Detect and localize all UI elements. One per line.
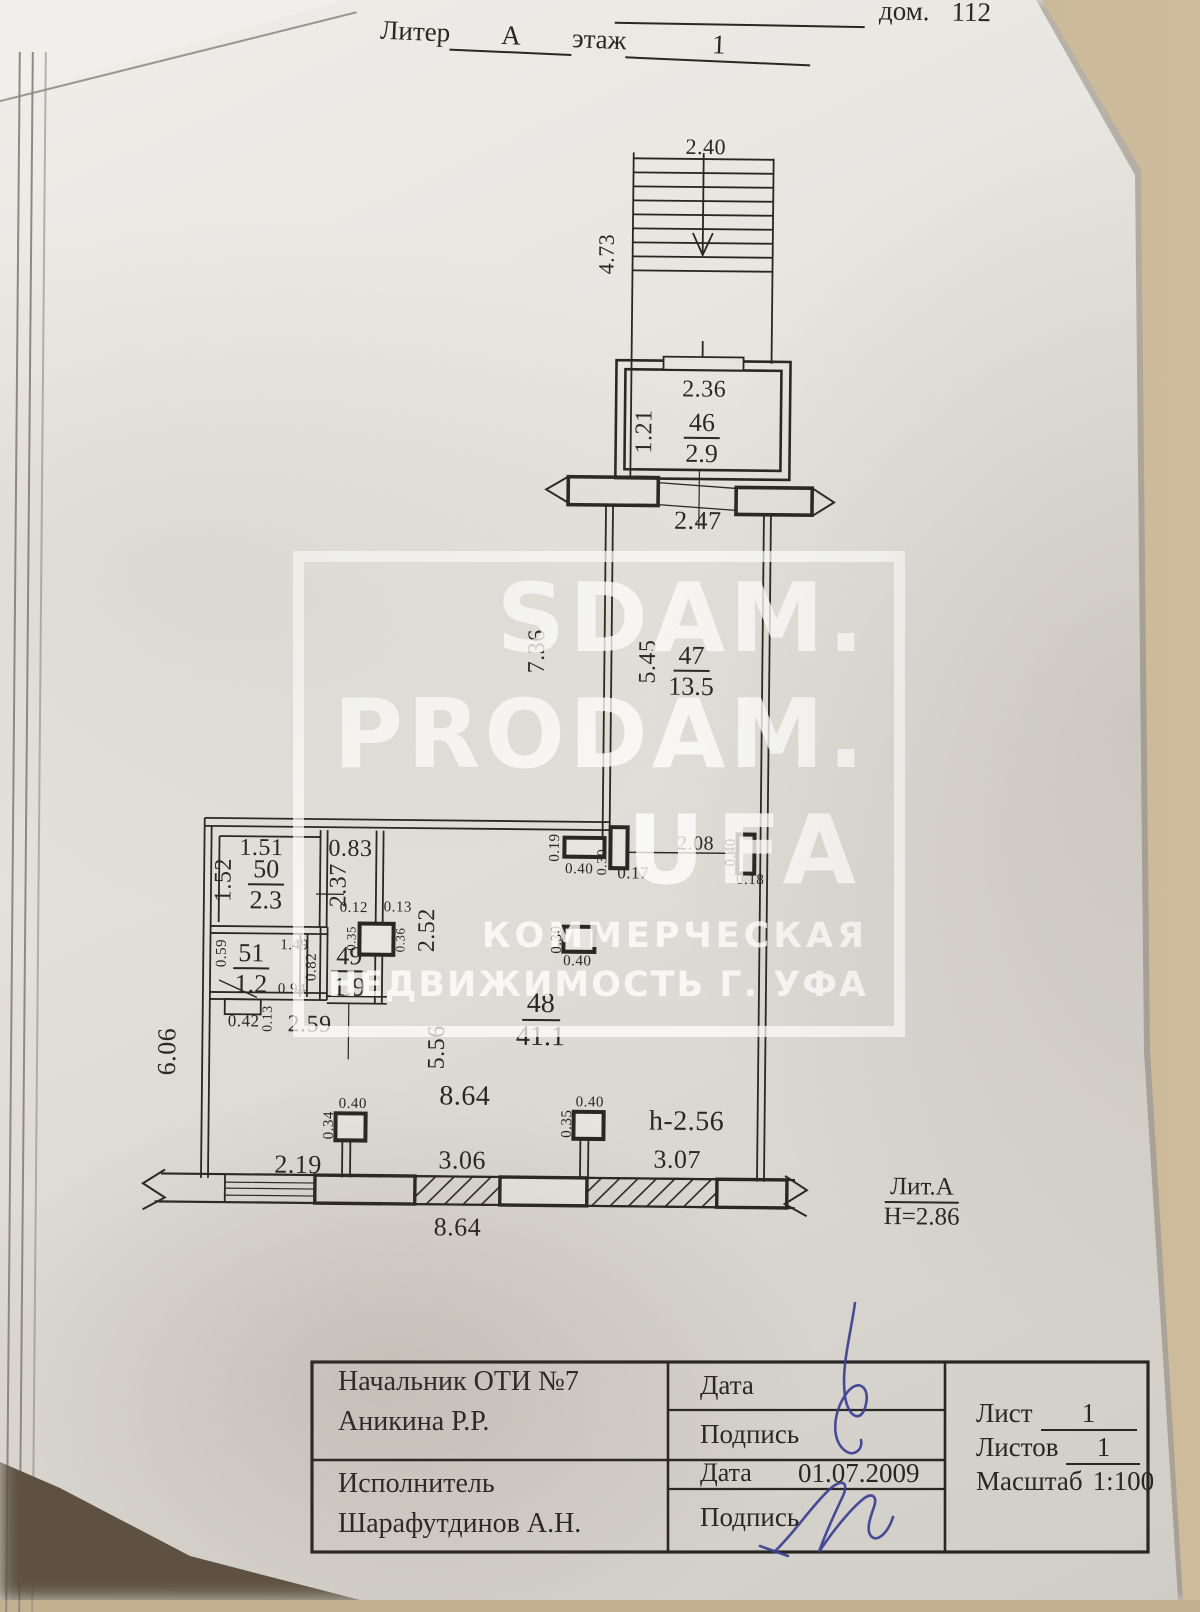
room-label-51: 51 1.2 bbox=[233, 938, 270, 999]
executor-role: Исполнитель bbox=[338, 1468, 495, 1500]
watermark-frame: SDAM. PRODAM. UFA КОММЕРЧЕСКАЯ НЕДВИЖИМО… bbox=[293, 551, 905, 1037]
watermark-sub-2: НЕДВИЖИМОСТЬ Г. УФА bbox=[304, 963, 868, 1009]
dim-hall-width: 8.64 bbox=[439, 1080, 490, 1113]
sheets-value: 1 bbox=[1066, 1432, 1140, 1465]
date-label-1: Дата bbox=[700, 1370, 754, 1401]
dim-r51-side: 0.59 bbox=[214, 939, 231, 967]
dim-bottom-seg1: 2.19 bbox=[274, 1150, 322, 1180]
dim-r50-depth: 1.52 bbox=[210, 858, 237, 902]
watermark-line-3: UFA bbox=[304, 794, 868, 910]
legend-liter-value: Лит.А bbox=[885, 1173, 959, 1204]
dim-colB-width: 0.40 bbox=[576, 1094, 604, 1111]
scale-value: 1:100 bbox=[1093, 1466, 1155, 1497]
scale-row: Масштаб 1:100 bbox=[976, 1466, 1154, 1497]
room-label-50: 50 2.3 bbox=[248, 854, 285, 915]
dim-bottom-seg3: 3.07 bbox=[653, 1145, 701, 1175]
dim-ceiling-height: h-2.56 bbox=[649, 1106, 725, 1139]
date-label-2: Дата bbox=[700, 1458, 752, 1488]
dim-colB-depth: 0.35 bbox=[559, 1109, 576, 1137]
scale-label: Масштаб bbox=[976, 1466, 1083, 1497]
chief-name: Аникина Р.Р. bbox=[338, 1406, 489, 1438]
dim-stair-width: 2.40 bbox=[685, 134, 726, 160]
watermark-line-2: PRODAM. bbox=[304, 678, 868, 794]
dim-stair-length: 4.73 bbox=[593, 234, 619, 275]
sheet-value: 1 bbox=[1041, 1398, 1137, 1431]
room-number: 46 bbox=[684, 408, 720, 439]
photo-of-document: { "header": { "house_label": "дом.", "ho… bbox=[0, 0, 1200, 1600]
chief-role: Начальник ОТИ №7 bbox=[338, 1366, 579, 1398]
sheet-label: Лист bbox=[976, 1398, 1033, 1429]
room-area: 2.9 bbox=[685, 439, 718, 468]
room-label-46: 46 2.9 bbox=[683, 408, 720, 469]
watermark-line-1: SDAM. bbox=[304, 562, 868, 678]
dim-left-wall: 6.06 bbox=[152, 1028, 182, 1076]
dim-r46-depth: 1.21 bbox=[631, 409, 658, 453]
dim-niche-depth: 0.13 bbox=[261, 1005, 277, 1032]
room-number: 51 bbox=[233, 938, 269, 969]
room-area: 1.2 bbox=[235, 969, 268, 998]
dim-colA-width: 0.40 bbox=[339, 1096, 367, 1113]
room-area: 2.3 bbox=[249, 885, 282, 914]
sheets-label: Листов bbox=[976, 1432, 1058, 1463]
room-number: 50 bbox=[248, 854, 284, 885]
dim-bottom-total: 8.64 bbox=[434, 1212, 482, 1242]
legend-liter: Лит.А Н=2.86 bbox=[884, 1173, 961, 1232]
sign-label-1: Подпись bbox=[700, 1419, 799, 1450]
sheets-row: Листов 1 bbox=[976, 1432, 1140, 1465]
executor-name: Шарафутдинов А.Н. bbox=[338, 1508, 581, 1540]
sign-label-2: Подпись bbox=[700, 1502, 799, 1533]
dim-colA-depth: 0.34 bbox=[321, 1111, 338, 1139]
dim-niche-width: 0.42 bbox=[228, 1011, 260, 1031]
sheet-row: Лист 1 bbox=[976, 1398, 1137, 1431]
dim-entrance-width: 2.47 bbox=[674, 506, 722, 536]
watermark-sub-1: КОММЕРЧЕСКАЯ bbox=[304, 914, 868, 960]
legend-height-value: Н=2.86 bbox=[884, 1203, 960, 1232]
dim-bottom-seg2: 3.06 bbox=[438, 1145, 486, 1175]
dim-r46-width: 2.36 bbox=[682, 376, 726, 403]
date-value: 01.07.2009 bbox=[798, 1458, 920, 1489]
